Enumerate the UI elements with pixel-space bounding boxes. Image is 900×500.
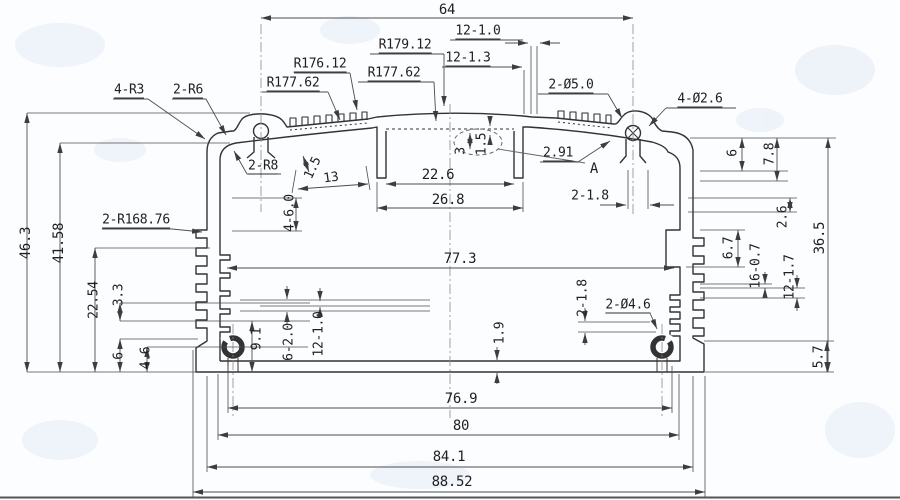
drawing-canvas: 6412-1.012-1.3R179.12R176.12R177.62R177.…: [0, 0, 900, 500]
detail-a-callout: [454, 129, 585, 163]
centerlines: [233, 24, 662, 418]
dimension-lines: [27, 18, 836, 497]
profile-outline: [196, 111, 704, 372]
screw-boss-bottom-left: [220, 333, 242, 372]
extrusion-profile-drawing: [0, 0, 900, 500]
scan-watermark: [15, 16, 895, 489]
